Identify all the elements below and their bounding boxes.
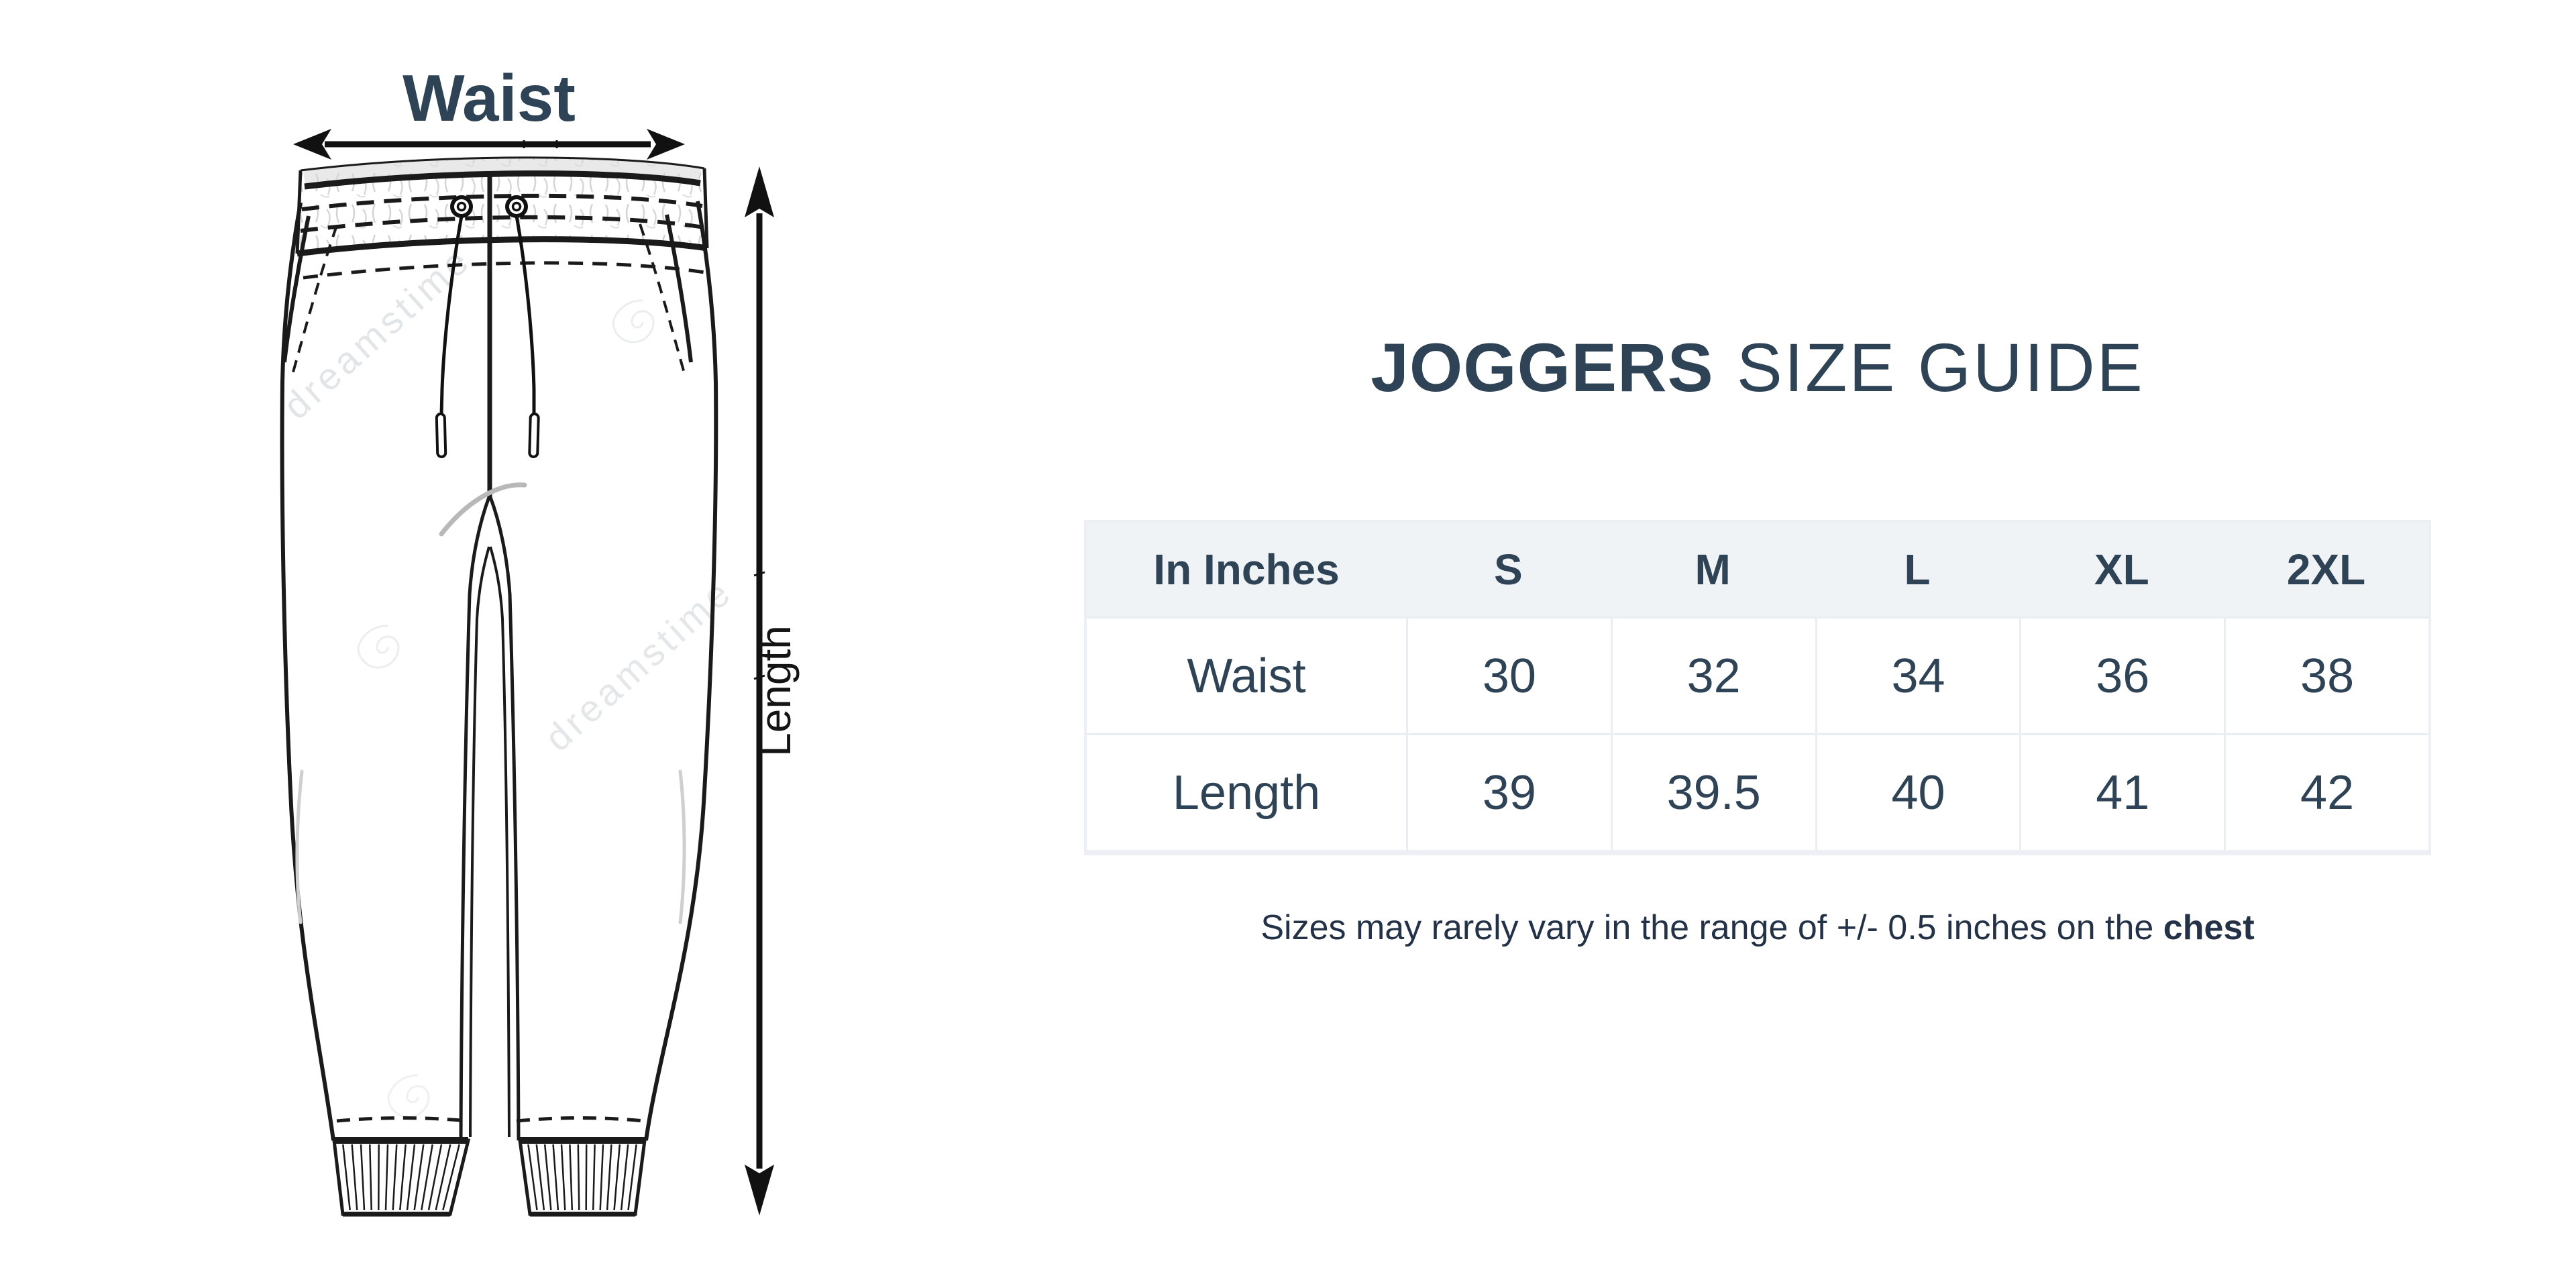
column-header-m: M (1611, 523, 1815, 616)
cell-length-s: 39 (1406, 733, 1611, 850)
length-measure-label: Length (751, 625, 800, 757)
joggers-sketch-svg: dreamstime dreamstime Waist (275, 47, 825, 1241)
watermark-spiral-icon (358, 626, 398, 667)
cell-waist-xl: 36 (2019, 616, 2224, 733)
cell-waist-m: 32 (1611, 616, 1815, 733)
cell-waist-2xl: 38 (2224, 616, 2428, 733)
left-inseam-inner (470, 547, 489, 1137)
row-label-length: Length (1087, 733, 1406, 850)
column-header-2xl: 2XL (2224, 523, 2428, 616)
eyelet-right-icon (507, 197, 526, 216)
row-label-waist: Waist (1087, 616, 1406, 733)
cell-length-xl: 41 (2019, 733, 2224, 850)
waistband (295, 149, 711, 278)
cell-length-l: 40 (1815, 733, 2020, 850)
size-guide-panel: JOGGERSSIZE GUIDE In Inches S M L XL 2XL… (1084, 0, 2431, 1288)
cell-waist-l: 34 (1815, 616, 2020, 733)
title-suffix: SIZE GUIDE (1737, 329, 2145, 406)
column-header-s: S (1406, 523, 1611, 616)
right-inseam (490, 497, 519, 1140)
left-outer-seam (282, 203, 333, 1140)
right-inseam-inner (490, 547, 509, 1137)
note-bold-text: chest (2163, 908, 2255, 947)
eyelet-left-icon (452, 197, 471, 216)
cell-length-2xl: 42 (2224, 733, 2428, 850)
drawstring-right (517, 216, 539, 457)
aglet (529, 414, 539, 457)
column-header-xl: XL (2019, 523, 2224, 616)
cell-waist-s: 30 (1406, 616, 1611, 733)
joggers-technical-drawing: dreamstime dreamstime Waist (275, 47, 825, 1241)
left-ribbed-cuff (334, 1140, 468, 1214)
column-header-l: L (1815, 523, 2020, 616)
title-product: JOGGERS (1371, 329, 1713, 406)
watermark-spiral-icon (613, 301, 653, 342)
size-variation-note: Sizes may rarely vary in the range of +/… (1084, 907, 2431, 949)
watermark-spiral-icon (388, 1075, 429, 1117)
cell-length-m: 39.5 (1611, 733, 1815, 850)
left-cuff-stitch-dashed (337, 1118, 468, 1122)
hip-stitch-dashed (303, 263, 704, 278)
aglet (437, 414, 446, 457)
right-cuff-stitch-dashed (517, 1118, 644, 1122)
waist-measure-label: Waist (402, 61, 576, 135)
note-text: Sizes may rarely vary in the range of +/… (1260, 908, 2163, 947)
page-title: JOGGERSSIZE GUIDE (1084, 333, 2431, 402)
column-header-unit: In Inches (1087, 523, 1406, 616)
right-ribbed-cuff (520, 1140, 645, 1214)
size-table: In Inches S M L XL 2XL Waist 30 32 34 36… (1084, 520, 2431, 855)
left-inseam (461, 497, 489, 1140)
